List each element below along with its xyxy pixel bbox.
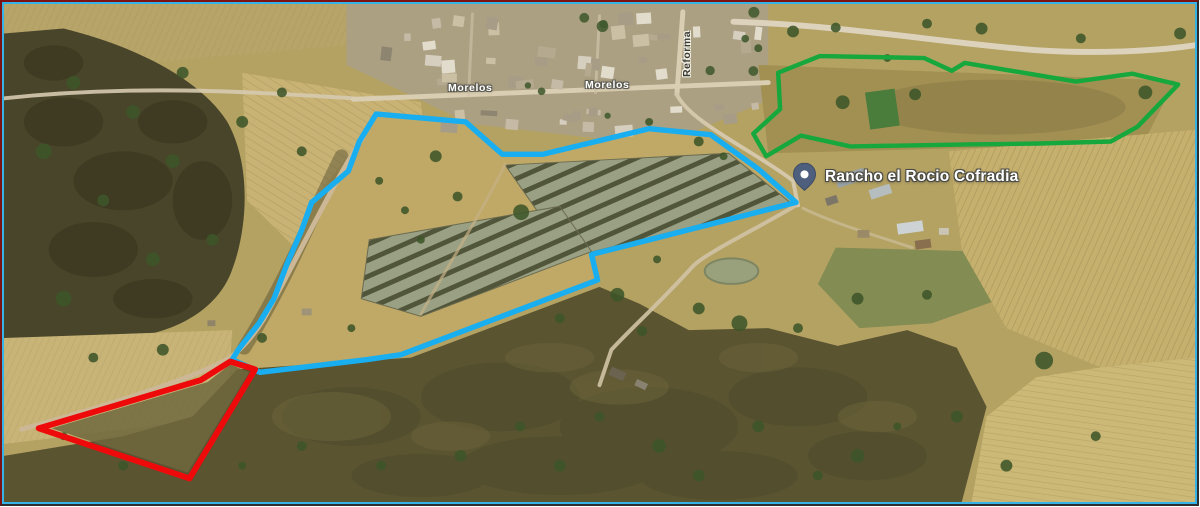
red-parcel-outline[interactable] <box>39 362 255 479</box>
map-pin-icon[interactable] <box>793 162 816 191</box>
parcel-overlays <box>4 4 1195 502</box>
place-label[interactable]: Rancho el Rocio Cofradia <box>825 168 1018 186</box>
green-parcel-outline[interactable] <box>753 56 1178 156</box>
satellite-map[interactable]: Morelos Morelos Reforma Rancho el Rocio … <box>2 2 1197 504</box>
map-frame: Morelos Morelos Reforma Rancho el Rocio … <box>0 0 1199 506</box>
place-marker: Rancho el Rocio Cofradia <box>793 161 1018 191</box>
blue-parcel-outline[interactable] <box>232 114 796 372</box>
